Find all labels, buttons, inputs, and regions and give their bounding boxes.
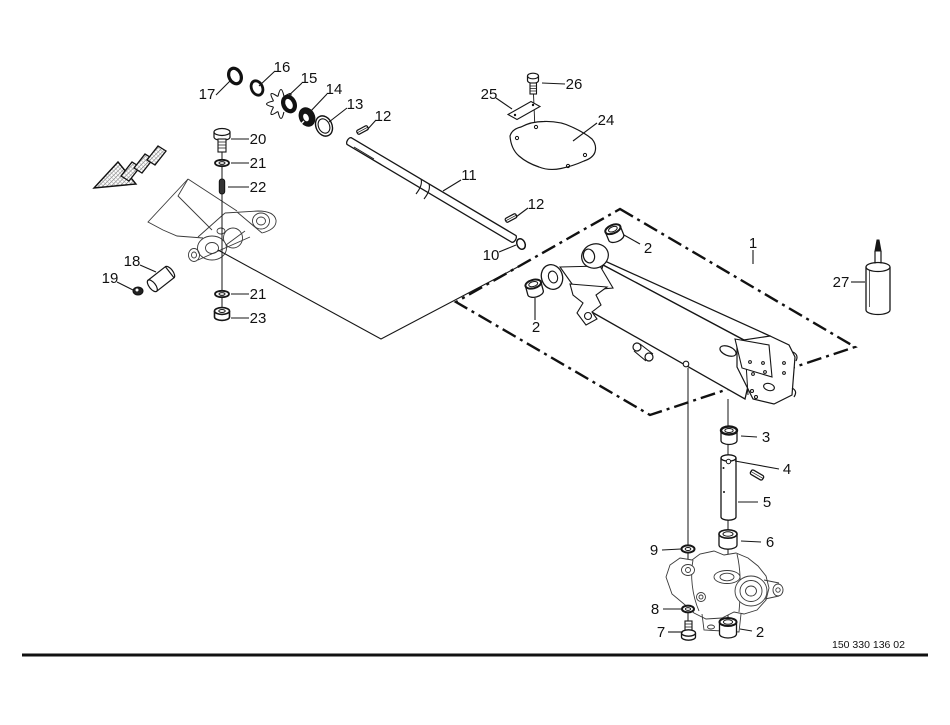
callout-25: 25	[481, 86, 498, 103]
washer-21-upper	[215, 160, 229, 166]
callout-12-lower: 12	[528, 196, 545, 213]
star-washer-15	[267, 90, 298, 119]
callout-17: 17	[199, 86, 216, 103]
bolt-26	[528, 73, 539, 94]
washer-8	[682, 606, 694, 613]
callout-24: 24	[598, 112, 615, 129]
callout-19: 19	[102, 270, 119, 287]
bolt-7	[682, 621, 696, 640]
bolt-20	[214, 129, 230, 153]
callout-14: 14	[326, 81, 343, 98]
callout-1: 1	[749, 235, 757, 252]
callout-11: 11	[461, 167, 477, 184]
cross-beam-part-1	[538, 240, 797, 404]
callout-4: 4	[783, 461, 791, 478]
callout-21-lower: 21	[250, 286, 267, 303]
callout-26: 26	[566, 76, 583, 93]
cover-plate-group	[508, 73, 596, 169]
callout-10: 10	[483, 247, 500, 264]
washer-10	[515, 237, 527, 250]
nut-19	[133, 287, 143, 295]
parts-diagram-page: 17 16 15 14 13 12 11 12 10 20 21 22 18 1…	[0, 0, 950, 725]
bearing-14	[296, 105, 318, 129]
bushing-3	[721, 427, 737, 445]
exploded-view-diagram: 17 16 15 14 13 12 11 12 10 20 21 22 18 1…	[0, 0, 950, 725]
callout-5: 5	[763, 494, 771, 511]
callout-2-bottom: 2	[756, 624, 764, 641]
callout-8: 8	[651, 601, 659, 618]
strip-25	[508, 102, 540, 120]
callout-27: 27	[833, 274, 850, 291]
callout-13: 13	[347, 96, 364, 113]
callout-15: 15	[301, 70, 318, 87]
callout-20: 20	[250, 131, 267, 148]
pin-4	[750, 469, 765, 480]
callout-6: 6	[766, 534, 774, 551]
callout-9: 9	[650, 542, 658, 559]
nut-23	[215, 308, 230, 321]
washer-21-lower	[215, 291, 229, 297]
bushing-2-left	[524, 278, 544, 299]
pin-12-upper	[356, 125, 369, 135]
washer-9	[682, 545, 695, 552]
callout-3: 3	[762, 429, 770, 446]
grease-cartridge-27	[866, 240, 890, 315]
ring-13	[312, 113, 335, 139]
pin-22	[219, 179, 224, 194]
callout-18: 18	[124, 253, 141, 270]
drawing-number: 150 330 136 02	[832, 639, 905, 651]
callout-16: 16	[274, 59, 291, 76]
bushing-6	[719, 530, 737, 549]
callout-22: 22	[250, 179, 267, 196]
callout-12-upper: 12	[375, 108, 392, 125]
callout-23: 23	[250, 310, 267, 327]
bushing-2-bottom	[720, 618, 737, 638]
callout-7: 7	[657, 624, 665, 641]
ring-16	[249, 79, 265, 97]
bushing-2-top	[604, 222, 625, 244]
pin-12-lower	[505, 213, 518, 223]
callout-2-top: 2	[644, 240, 652, 257]
travel-direction-arrow-icon	[94, 146, 166, 188]
shaft-11	[347, 138, 517, 243]
plate-24	[510, 121, 596, 169]
callout-21-upper: 21	[250, 155, 267, 172]
callout-2-left: 2	[532, 319, 540, 336]
tube-5	[721, 455, 736, 520]
